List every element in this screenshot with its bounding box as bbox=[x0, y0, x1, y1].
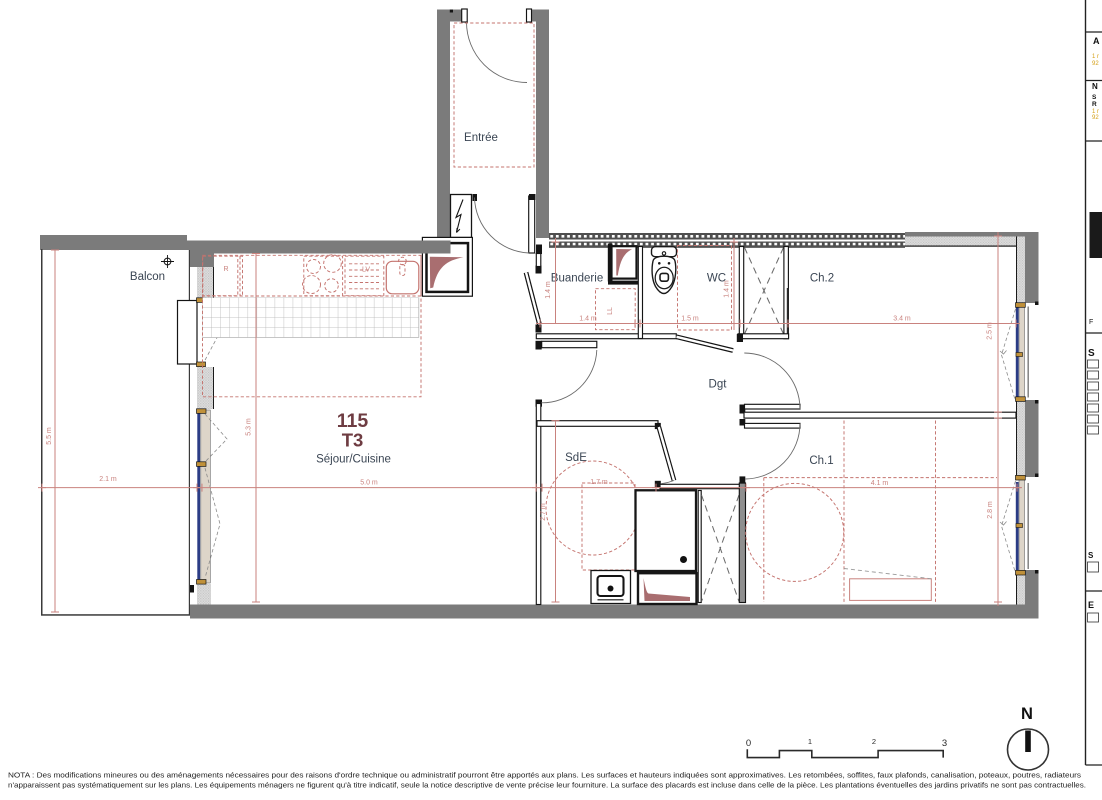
svg-text:92: 92 bbox=[1092, 61, 1099, 67]
svg-text:A: A bbox=[1093, 36, 1100, 46]
svg-text:E: E bbox=[1088, 600, 1094, 610]
svg-text:N: N bbox=[1021, 705, 1033, 723]
svg-text:0: 0 bbox=[746, 738, 751, 749]
svg-text:5.0 m: 5.0 m bbox=[360, 480, 378, 487]
svg-text:R: R bbox=[223, 266, 228, 273]
svg-text:T3: T3 bbox=[342, 430, 364, 451]
svg-text:2: 2 bbox=[872, 737, 876, 746]
svg-text:n'apparaissent pas systématiqu: n'apparaissent pas systématiquement sur … bbox=[8, 781, 1086, 790]
svg-text:1.5 m: 1.5 m bbox=[681, 316, 699, 323]
svg-text:S: S bbox=[1088, 348, 1095, 359]
svg-text:F: F bbox=[1089, 319, 1093, 326]
svg-text:Dgt: Dgt bbox=[709, 379, 728, 391]
svg-text:S: S bbox=[1092, 94, 1097, 101]
svg-text:5.5 m: 5.5 m bbox=[46, 427, 53, 445]
svg-text:Ch.1: Ch.1 bbox=[809, 455, 833, 467]
svg-text:1 r: 1 r bbox=[1092, 54, 1099, 60]
svg-text:Buanderie: Buanderie bbox=[551, 273, 603, 285]
svg-text:92: 92 bbox=[1092, 115, 1099, 121]
svg-text:4.1 m: 4.1 m bbox=[871, 480, 889, 487]
svg-text:Entrée: Entrée bbox=[464, 132, 498, 144]
svg-text:3.4 m: 3.4 m bbox=[893, 316, 911, 323]
svg-text:2.7 m: 2.7 m bbox=[540, 503, 547, 521]
svg-text:1.4 m: 1.4 m bbox=[724, 280, 731, 298]
svg-text:1.4 m: 1.4 m bbox=[545, 281, 552, 299]
svg-text:LL: LL bbox=[607, 307, 614, 315]
svg-text:Séjour/Cuisine: Séjour/Cuisine bbox=[316, 454, 391, 466]
svg-text:1.4 m: 1.4 m bbox=[579, 316, 597, 323]
svg-text:NOTA : Des modifications mineu: NOTA : Des modifications mineures ou des… bbox=[8, 771, 1081, 780]
svg-text:S: S bbox=[1088, 551, 1094, 560]
svg-text:Ch.2: Ch.2 bbox=[810, 273, 834, 285]
svg-text:1.7 m: 1.7 m bbox=[590, 479, 608, 486]
svg-text:1: 1 bbox=[808, 737, 812, 746]
svg-text:N: N bbox=[1092, 82, 1098, 91]
svg-text:2.8 m: 2.8 m bbox=[987, 501, 994, 519]
svg-text:3: 3 bbox=[942, 738, 947, 749]
svg-text:5.3 m: 5.3 m bbox=[246, 418, 253, 436]
svg-text:2.5 m: 2.5 m bbox=[987, 322, 994, 340]
svg-text:Balcon: Balcon bbox=[130, 271, 165, 283]
svg-text:R: R bbox=[1092, 101, 1097, 108]
svg-text:LV: LV bbox=[362, 267, 370, 274]
svg-text:2.1 m: 2.1 m bbox=[99, 476, 117, 483]
